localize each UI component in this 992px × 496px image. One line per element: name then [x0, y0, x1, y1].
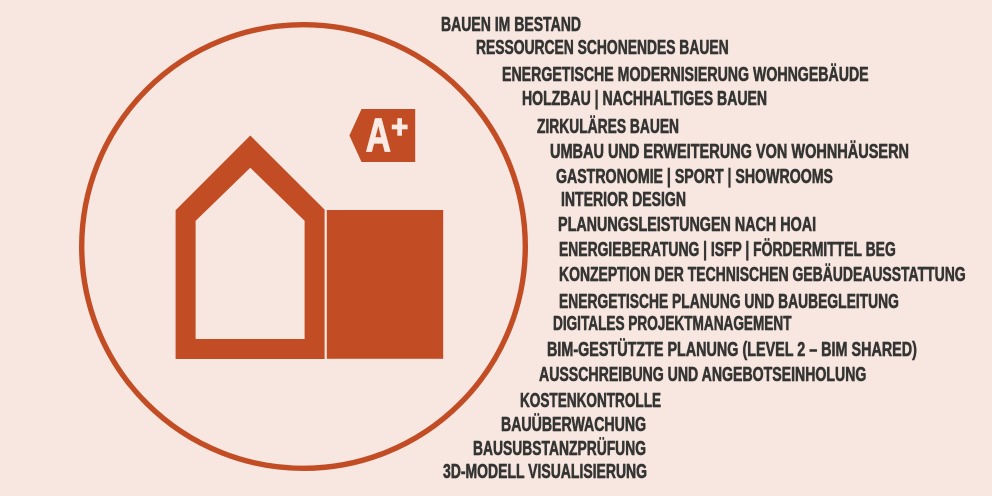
- svg-text:A: A: [366, 109, 391, 161]
